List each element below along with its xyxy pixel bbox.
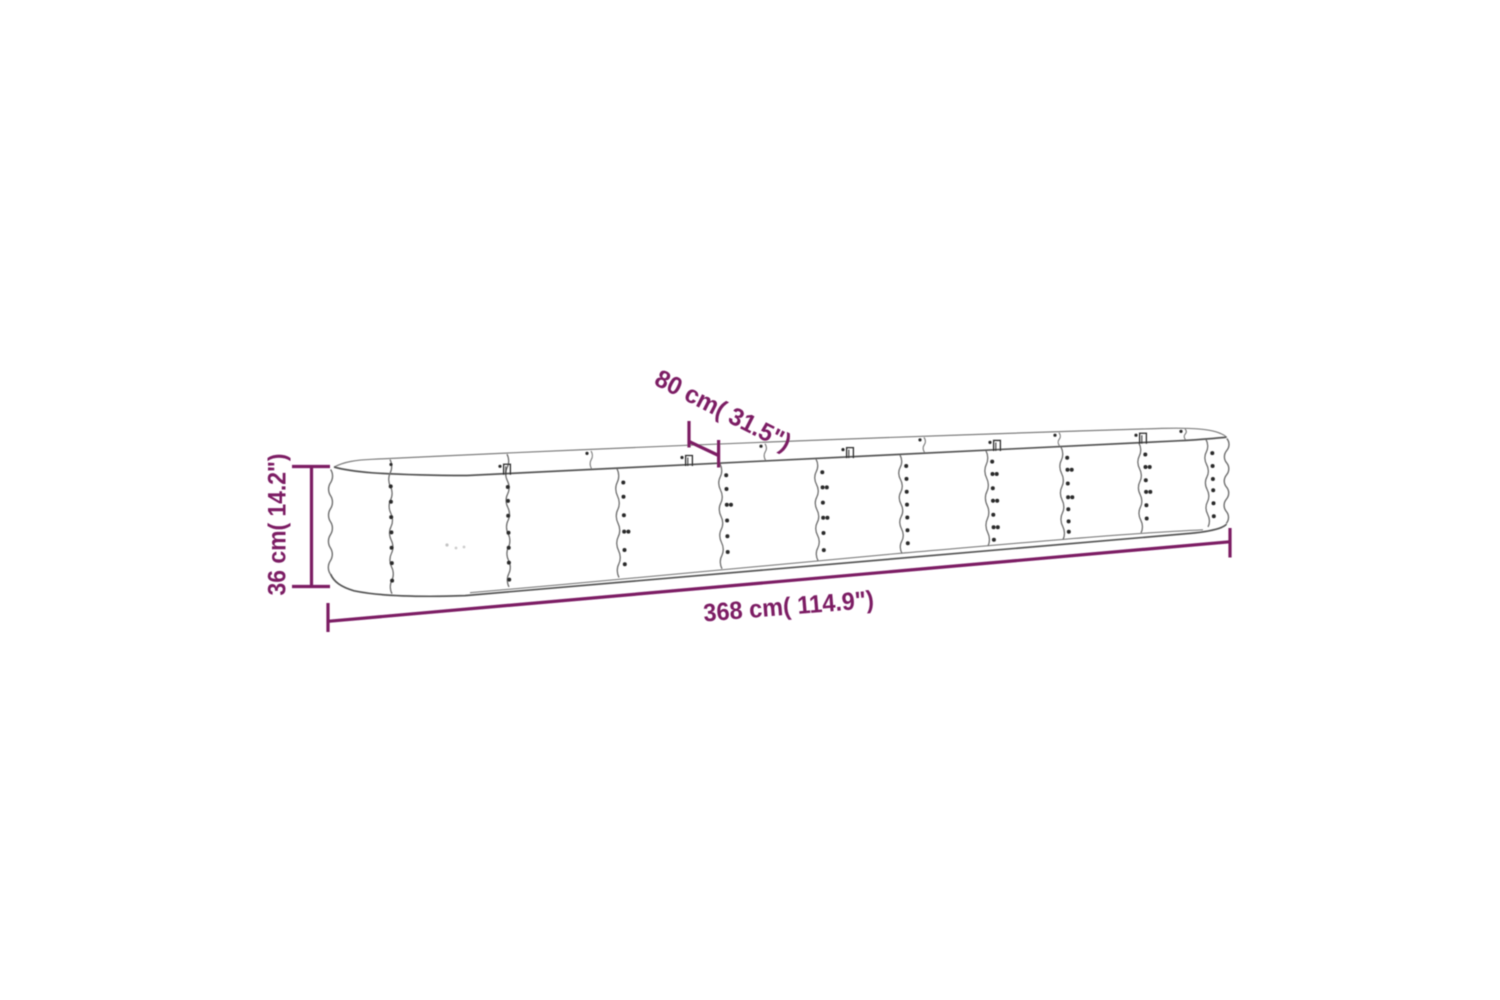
svg-text:368 cm( 114.9"): 368 cm( 114.9") (702, 586, 875, 628)
svg-text:80 cm( 31.5"): 80 cm( 31.5") (650, 364, 795, 457)
svg-text:36 cm( 14.2"): 36 cm( 14.2") (264, 454, 292, 596)
